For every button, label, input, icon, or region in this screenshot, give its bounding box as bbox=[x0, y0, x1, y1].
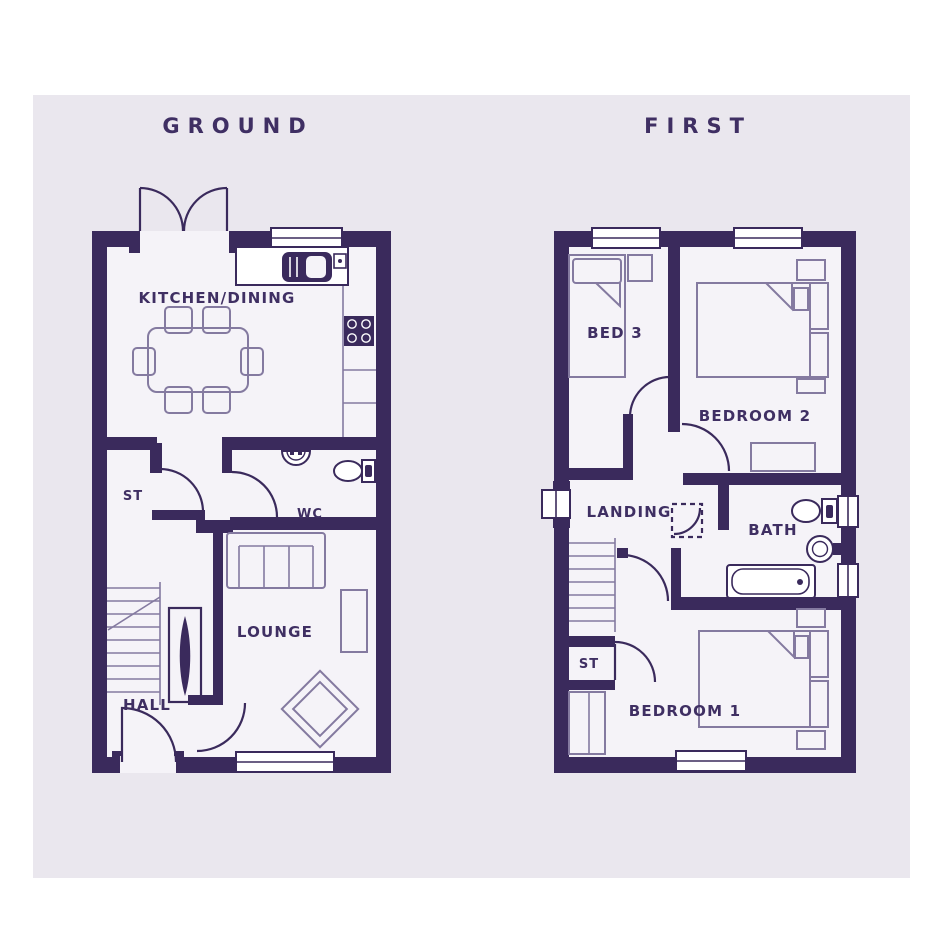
front-door-opening bbox=[120, 756, 176, 773]
bath-window-2 bbox=[838, 564, 858, 597]
label-kitchen-dining: KITCHEN/DINING bbox=[138, 289, 295, 307]
label-wc: WC bbox=[297, 507, 323, 522]
label-bedroom1: BEDROOM 1 bbox=[629, 702, 742, 720]
label-lounge: LOUNGE bbox=[237, 623, 313, 641]
bath-window bbox=[838, 496, 858, 527]
landing-window bbox=[542, 490, 570, 518]
label-ground-storage: ST bbox=[123, 489, 143, 504]
kitchen-sink bbox=[236, 247, 348, 285]
label-bed3: BED 3 bbox=[587, 324, 643, 342]
bedroom1-window bbox=[676, 751, 746, 771]
lounge-window bbox=[236, 752, 334, 772]
label-bedroom2: BEDROOM 2 bbox=[699, 407, 812, 425]
first-title: FIRST bbox=[644, 114, 752, 138]
ground-floor-area bbox=[107, 247, 376, 757]
label-first-storage: ST bbox=[579, 657, 599, 672]
bed3-window bbox=[592, 228, 660, 248]
bedroom2-window bbox=[734, 228, 802, 248]
wc-toilet bbox=[334, 460, 375, 482]
label-hall: HALL bbox=[123, 696, 171, 714]
label-bath: BATH bbox=[748, 521, 797, 539]
french-door-opening bbox=[140, 231, 229, 247]
floorplan-svg: GROUND KITCHEN/DINING ST WC LOUNGE HALL bbox=[0, 0, 945, 945]
hob bbox=[344, 316, 374, 346]
bathtub bbox=[727, 565, 815, 598]
bath-toilet bbox=[792, 499, 837, 523]
floorplan-page: GROUND KITCHEN/DINING ST WC LOUNGE HALL bbox=[0, 0, 945, 945]
kitchen-window bbox=[271, 228, 342, 248]
label-landing: LANDING bbox=[586, 503, 671, 521]
ground-title: GROUND bbox=[162, 114, 313, 138]
